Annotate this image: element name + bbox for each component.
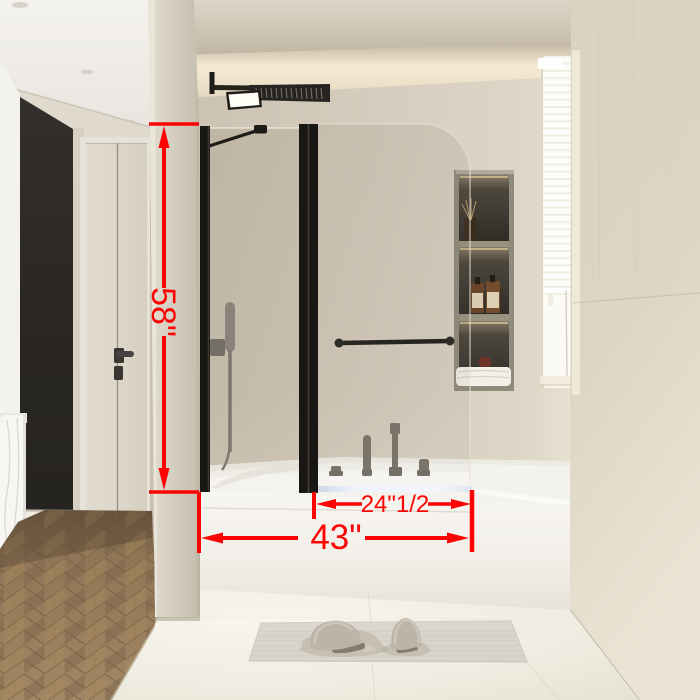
svg-text:58": 58" <box>144 287 182 337</box>
svg-text:43": 43" <box>310 518 361 557</box>
svg-text:24"1/2: 24"1/2 <box>361 491 430 518</box>
